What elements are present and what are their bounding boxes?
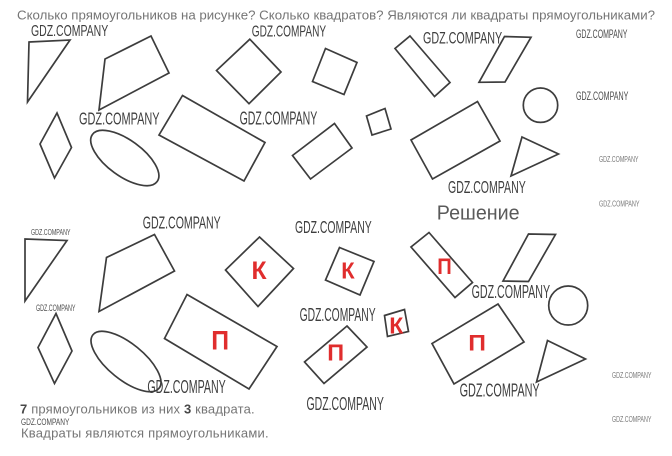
svg-text:GDZ.COMPANY: GDZ.COMPANY xyxy=(576,28,628,41)
svg-text:К: К xyxy=(389,312,404,338)
svg-text:7 прямоугольников из них 3 ква: 7 прямоугольников из них 3 квадрата. xyxy=(20,402,255,417)
svg-text:GDZ.COMPANY: GDZ.COMPANY xyxy=(612,416,652,424)
svg-text:GDZ.COMPANY: GDZ.COMPANY xyxy=(240,108,318,129)
svg-text:Квадраты являются прямоугольни: Квадраты являются прямоугольниками. xyxy=(21,426,269,441)
svg-text:GDZ.COMPANY: GDZ.COMPANY xyxy=(472,282,550,303)
svg-text:Сколько прямоугольников на рис: Сколько прямоугольников на рисунке? Скол… xyxy=(17,7,655,22)
svg-text:GDZ.COMPANY: GDZ.COMPANY xyxy=(576,90,629,103)
svg-text:GDZ.COMPANY: GDZ.COMPANY xyxy=(612,372,652,380)
svg-text:GDZ.COMPANY: GDZ.COMPANY xyxy=(36,302,76,313)
svg-text:К: К xyxy=(252,258,268,285)
svg-text:GDZ.COMPANY: GDZ.COMPANY xyxy=(79,110,160,129)
svg-text:GDZ.COMPANY: GDZ.COMPANY xyxy=(31,22,108,40)
svg-text:GDZ.COMPANY: GDZ.COMPANY xyxy=(460,381,540,402)
svg-text:GDZ.COMPANY: GDZ.COMPANY xyxy=(300,305,376,326)
svg-text:П: П xyxy=(327,339,344,365)
svg-text:GDZ.COMPANY: GDZ.COMPANY xyxy=(599,201,640,209)
svg-text:П: П xyxy=(437,255,452,279)
svg-text:GDZ.COMPANY: GDZ.COMPANY xyxy=(295,218,372,238)
svg-text:GDZ.COMPANY: GDZ.COMPANY xyxy=(31,227,71,238)
svg-text:GDZ.COMPANY: GDZ.COMPANY xyxy=(147,377,225,398)
svg-text:GDZ.COMPANY: GDZ.COMPANY xyxy=(448,178,526,198)
svg-text:GDZ.COMPANY: GDZ.COMPANY xyxy=(423,29,503,48)
svg-text:GDZ.COMPANY: GDZ.COMPANY xyxy=(143,214,221,234)
svg-text:К: К xyxy=(341,257,355,284)
svg-text:Решение: Решение xyxy=(437,202,520,224)
svg-text:GDZ.COMPANY: GDZ.COMPANY xyxy=(599,154,639,165)
svg-text:П: П xyxy=(468,331,486,355)
svg-text:П: П xyxy=(211,327,229,356)
svg-text:GDZ.COMPANY: GDZ.COMPANY xyxy=(307,395,384,415)
svg-text:GDZ.COMPANY: GDZ.COMPANY xyxy=(252,22,326,40)
